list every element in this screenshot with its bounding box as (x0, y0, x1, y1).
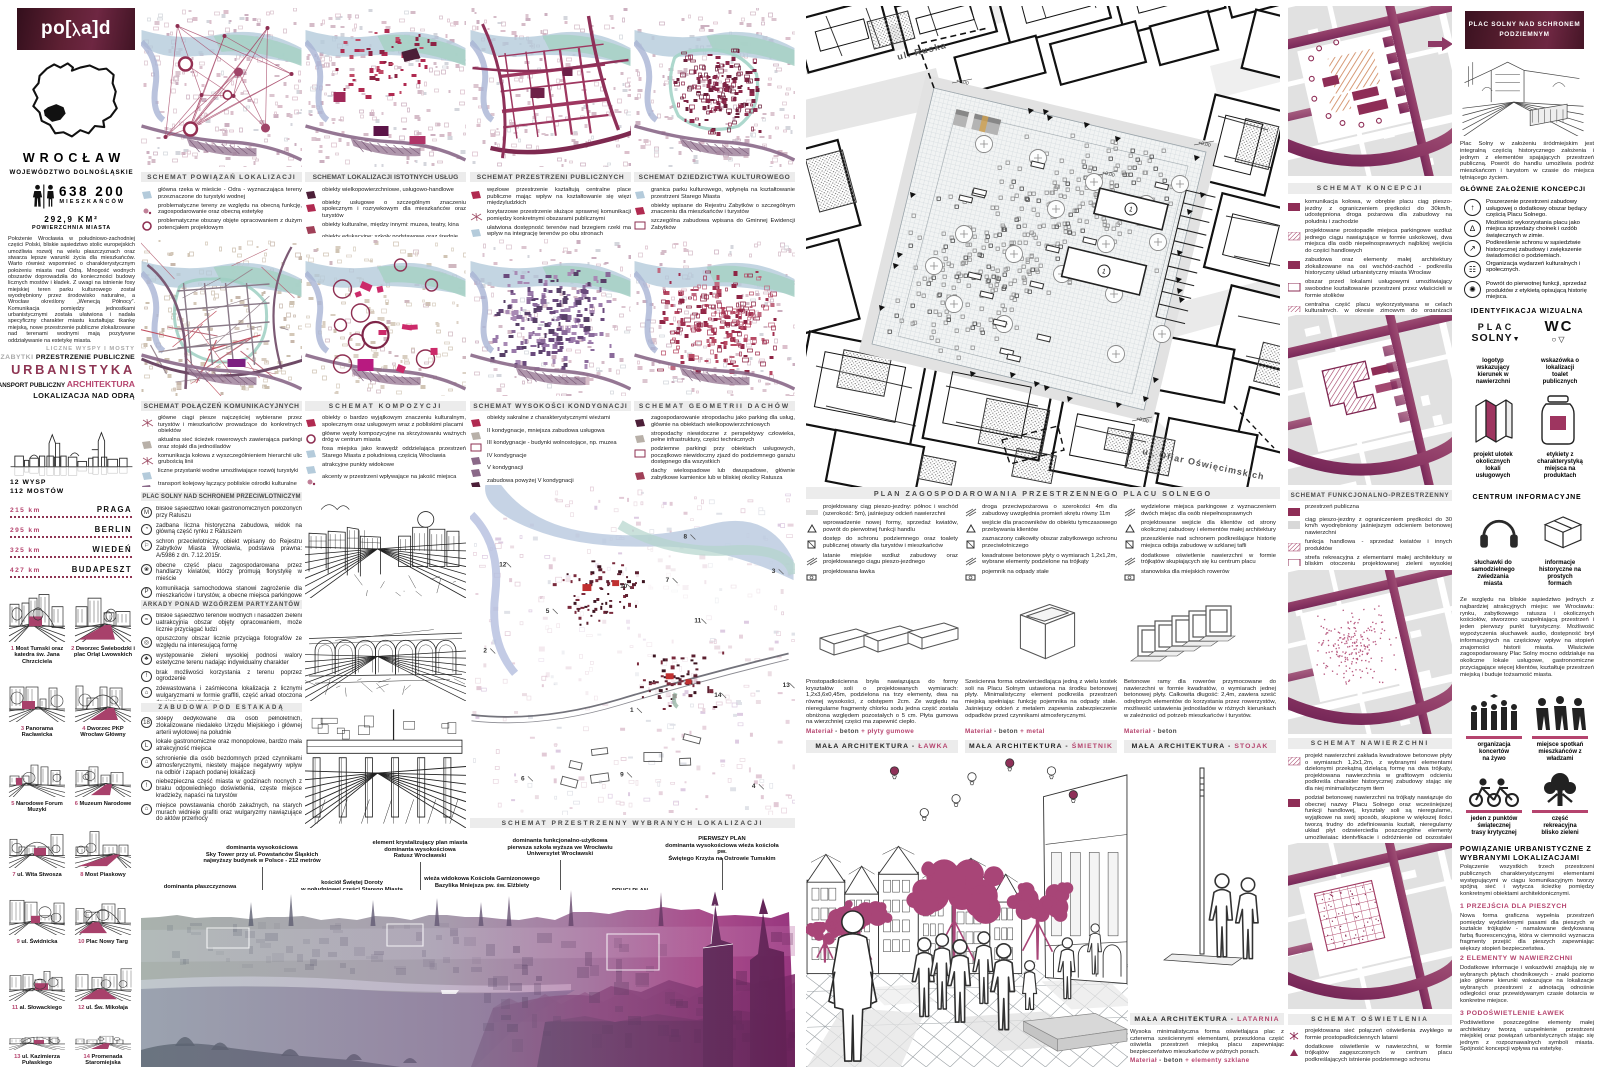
svg-text:13: 13 (783, 682, 791, 689)
svg-text:6: 6 (521, 775, 525, 782)
svg-text:3: 3 (772, 568, 776, 575)
svg-text:10: 10 (620, 583, 628, 590)
svg-text:4: 4 (752, 783, 756, 790)
svg-text:11: 11 (694, 618, 701, 625)
svg-text:8: 8 (684, 534, 688, 541)
svg-text:1: 1 (630, 707, 634, 714)
svg-text:14: 14 (714, 692, 722, 699)
svg-text:7: 7 (666, 577, 670, 584)
svg-text:2: 2 (483, 647, 487, 654)
svg-text:12: 12 (499, 561, 507, 568)
svg-text:5: 5 (546, 608, 550, 615)
svg-text:9: 9 (620, 771, 624, 778)
